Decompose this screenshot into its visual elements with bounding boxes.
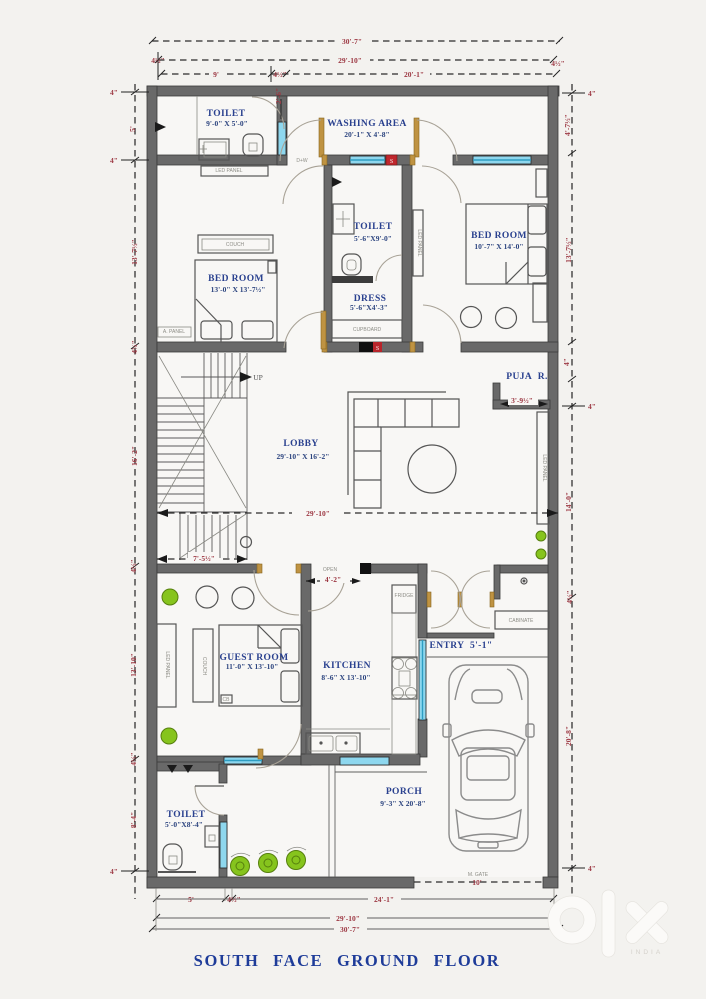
svg-text:29'-10": 29'-10": [306, 509, 330, 518]
svg-text:S: S: [390, 159, 393, 165]
svg-text:30'-7": 30'-7": [342, 37, 362, 46]
svg-text:5'-0"X8'-4": 5'-0"X8'-4": [165, 820, 203, 829]
svg-text:24'-1": 24'-1": [374, 895, 394, 904]
svg-text:4½": 4½": [129, 559, 138, 573]
svg-text:4½": 4½": [151, 56, 165, 65]
svg-text:INDIA: INDIA: [631, 949, 663, 956]
svg-text:10'-7" X 14'-0": 10'-7" X 14'-0": [474, 242, 523, 251]
svg-text:TOILET: TOILET: [167, 810, 206, 820]
svg-text:BED ROOM: BED ROOM: [208, 274, 264, 284]
svg-text:5': 5': [188, 895, 194, 904]
svg-text:7'-5½": 7'-5½": [193, 554, 215, 563]
svg-text:13'-7½": 13'-7½": [564, 237, 573, 263]
svg-text:LED PANEL: LED PANEL: [215, 168, 242, 174]
svg-text:LOBBY: LOBBY: [283, 439, 318, 449]
svg-text:4": 4": [562, 358, 571, 366]
svg-text:20'-1": 20'-1": [404, 70, 424, 79]
svg-text:16'-2": 16'-2": [130, 446, 139, 466]
svg-text:LED PANEL: LED PANEL: [164, 651, 170, 678]
svg-text:20'-1" X 4'-8": 20'-1" X 4'-8": [344, 130, 389, 139]
svg-text:OPEN: OPEN: [323, 567, 338, 573]
svg-text:5'-6"X9'-0": 5'-6"X9'-0": [354, 234, 392, 243]
svg-text:KITCHEN: KITCHEN: [323, 661, 371, 671]
svg-text:4": 4": [110, 88, 118, 97]
svg-text:4½": 4½": [227, 895, 241, 904]
svg-text:COUCH: COUCH: [201, 657, 207, 676]
svg-text:5': 5': [128, 126, 137, 132]
svg-text:WASHING AREA: WASHING AREA: [327, 119, 407, 129]
svg-text:SOUTH FACE GROUND FLOOR: SOUTH FACE GROUND FLOOR: [194, 951, 501, 970]
svg-text:2'-6": 2'-6": [274, 88, 283, 104]
svg-text:14'-0": 14'-0": [564, 492, 573, 512]
svg-text:29'-10": 29'-10": [338, 56, 362, 65]
svg-text:UP: UP: [253, 373, 263, 382]
svg-text:4": 4": [588, 402, 596, 411]
svg-text:CB: CB: [223, 697, 231, 703]
svg-text:13'-10": 13'-10": [129, 653, 138, 677]
svg-text:CUPBOARD: CUPBOARD: [353, 327, 382, 333]
svg-text:LED PANEL: LED PANEL: [416, 229, 422, 256]
svg-text:4'-2": 4'-2": [325, 575, 341, 584]
svg-text:4": 4": [110, 867, 118, 876]
svg-text:20'-8": 20'-8": [564, 726, 573, 746]
svg-text:5'-6"X4'-3": 5'-6"X4'-3": [350, 303, 388, 312]
svg-text:FRIDGE: FRIDGE: [395, 593, 415, 599]
svg-text:A. PANEL: A. PANEL: [163, 329, 185, 335]
svg-text:4½": 4½": [565, 590, 574, 604]
svg-text:10': 10': [472, 878, 482, 887]
svg-text:13'-0" X 13'-7½": 13'-0" X 13'-7½": [211, 285, 266, 294]
svg-text:4'-7½": 4'-7½": [563, 114, 572, 136]
svg-text:D+W: D+W: [296, 158, 308, 164]
svg-text:4¼": 4¼": [130, 340, 139, 354]
svg-text:4": 4": [588, 89, 596, 98]
svg-text:TOILET: TOILET: [207, 109, 246, 119]
svg-text:11'-0" X 13'-10": 11'-0" X 13'-10": [226, 662, 279, 671]
svg-text:4": 4": [588, 864, 596, 873]
svg-text:8'-6" X 13'-10": 8'-6" X 13'-10": [321, 673, 370, 682]
svg-text:PUJA R.: PUJA R.: [506, 372, 547, 382]
svg-text:4": 4": [110, 156, 118, 165]
svg-text:4½": 4½": [551, 59, 565, 68]
svg-text:S: S: [376, 346, 379, 352]
svg-text:TOILET: TOILET: [354, 222, 393, 232]
svg-text:CABINATE: CABINATE: [509, 618, 534, 624]
svg-text:COUCH: COUCH: [226, 242, 245, 248]
svg-text:LED PANEL: LED PANEL: [541, 454, 547, 481]
svg-text:3'-9½": 3'-9½": [511, 396, 533, 405]
svg-text:9'-3" X 20'-8": 9'-3" X 20'-8": [380, 799, 425, 808]
svg-text:4½": 4½": [273, 70, 287, 79]
svg-text:8'-4": 8'-4": [129, 812, 138, 828]
svg-text:30'-7": 30'-7": [340, 925, 360, 934]
svg-text:9'-0" X 5'-0": 9'-0" X 5'-0": [206, 119, 248, 128]
svg-text:4½": 4½": [129, 752, 138, 766]
svg-text:9': 9': [213, 70, 219, 79]
svg-text:ENTRY 5'-1": ENTRY 5'-1": [429, 641, 492, 651]
svg-text:BED ROOM: BED ROOM: [471, 231, 527, 241]
svg-text:13'-7½": 13'-7½": [130, 239, 139, 265]
svg-text:M. GATE: M. GATE: [468, 872, 489, 878]
svg-text:29'-10": 29'-10": [336, 914, 360, 923]
svg-text:29'-10" X 16'-2": 29'-10" X 16'-2": [277, 452, 330, 461]
svg-text:PORCH: PORCH: [386, 787, 423, 797]
